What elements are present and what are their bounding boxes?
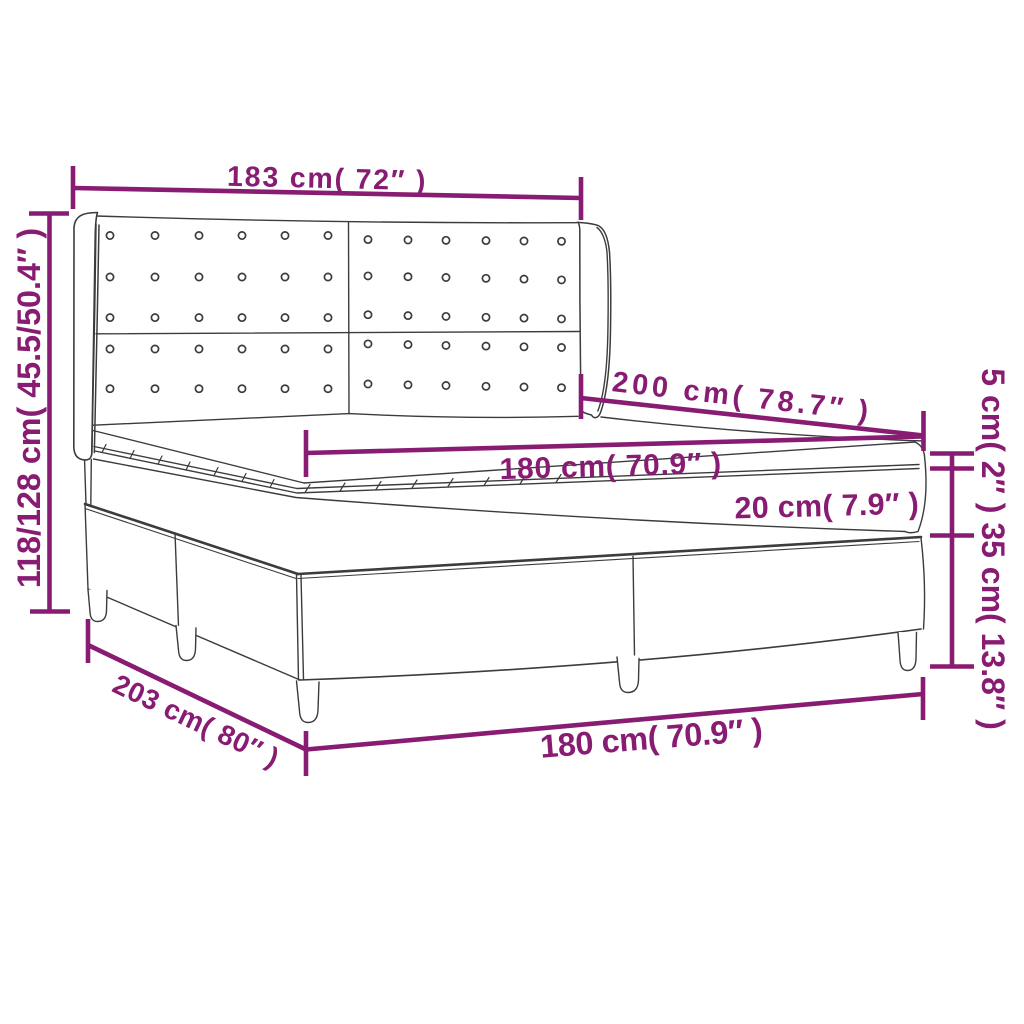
svg-text:20 cm( 7.9″ ): 20 cm( 7.9″ ) [734,487,919,526]
svg-text:118/128 cm( 45.5/50.4″ ): 118/128 cm( 45.5/50.4″ ) [11,228,47,588]
svg-text:183 cm( 72″ ): 183 cm( 72″ ) [227,161,428,198]
svg-text:5 cm( 2″ ) 35 cm( 13.8″ ): 5 cm( 2″ ) 35 cm( 13.8″ ) [975,368,1011,729]
svg-text:180 cm( 70.9″ ): 180 cm( 70.9″ ) [499,447,722,486]
